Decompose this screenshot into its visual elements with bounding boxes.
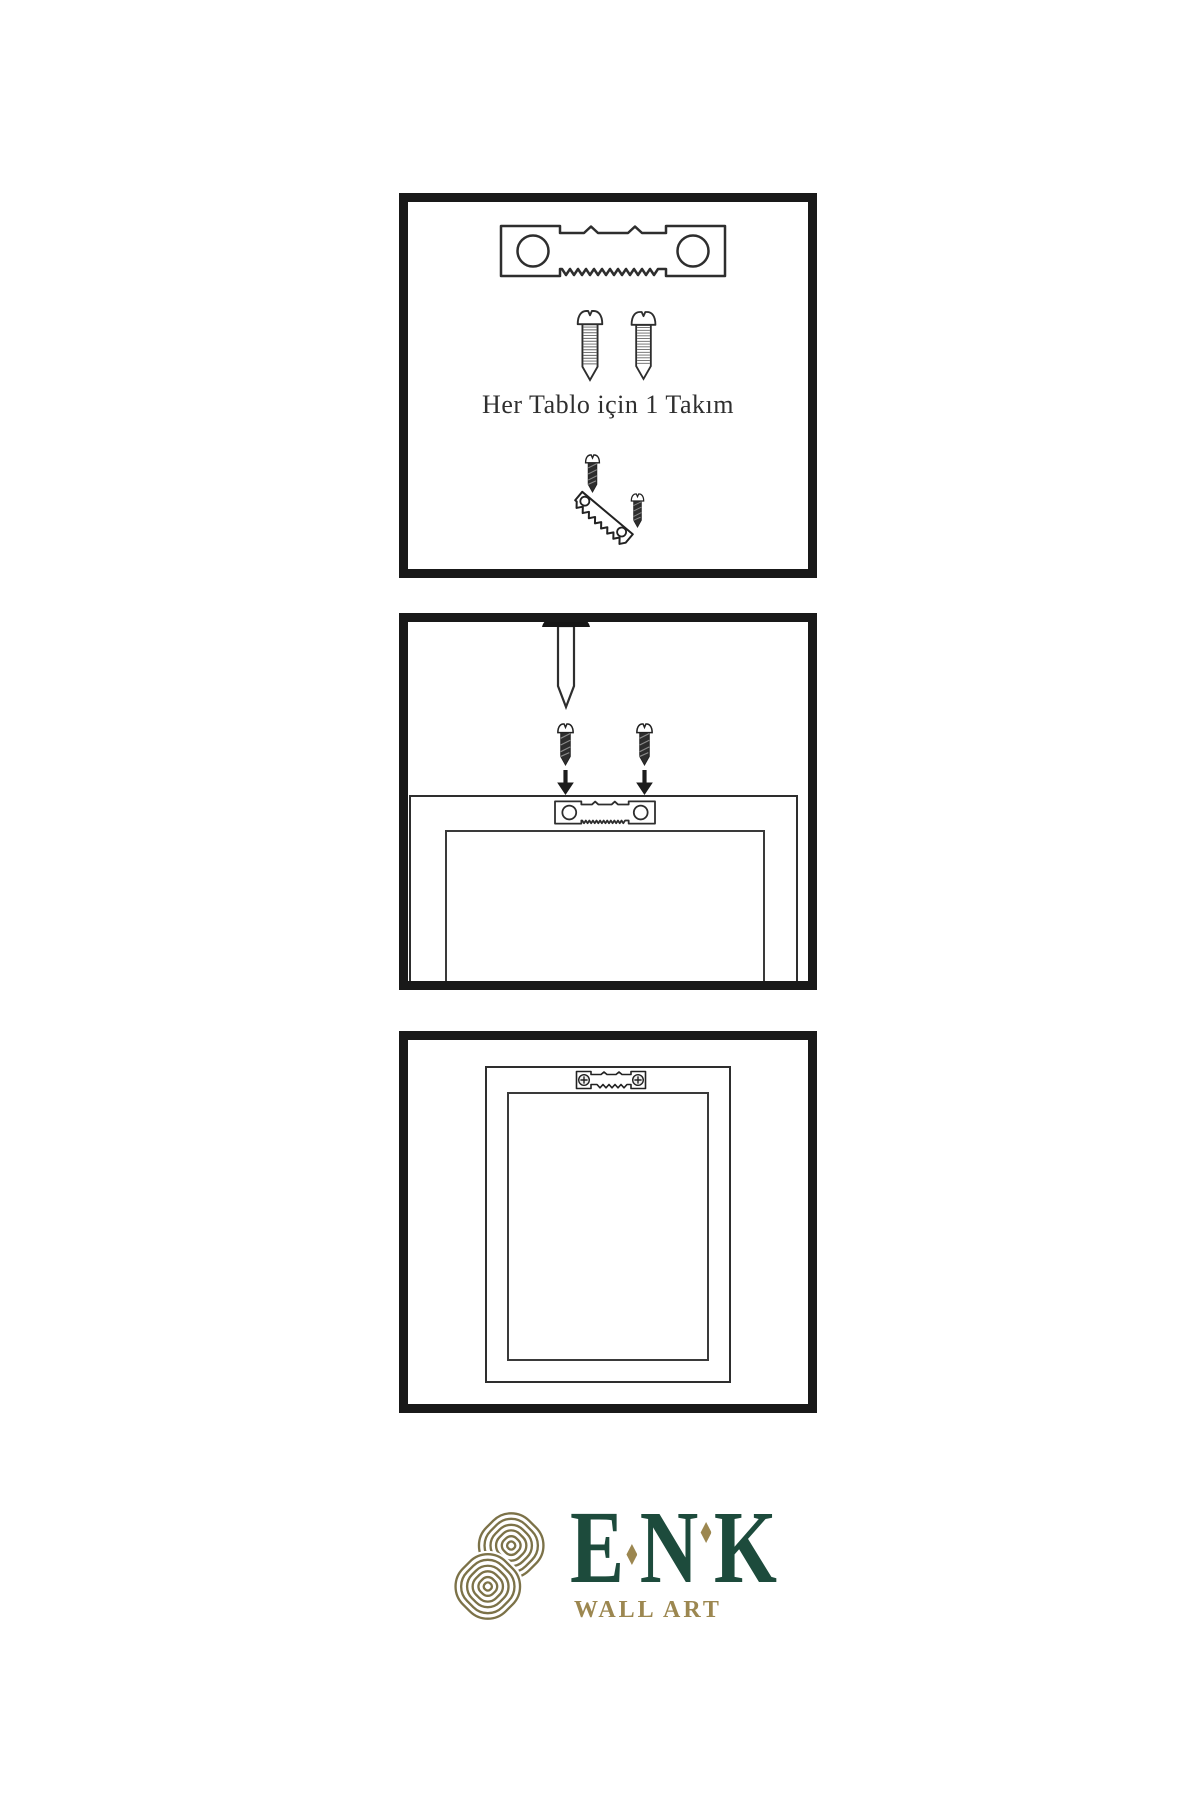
installed-sawtooth-hanger-icon	[575, 1070, 647, 1090]
frame-back-inner-outline	[445, 830, 765, 990]
instruction-sheet: Her Tablo için 1 Takım	[0, 0, 1200, 1800]
screw-icon	[573, 308, 607, 382]
frame-back-inner-outline	[507, 1092, 709, 1361]
sawtooth-hanger-icon	[553, 800, 657, 825]
wall-nail-icon	[541, 614, 591, 710]
brand-wordmark: E N K	[570, 1496, 777, 1600]
small-screw-icon	[634, 723, 655, 767]
diamond-icon	[626, 1544, 637, 1565]
sawtooth-hanger-icon	[498, 223, 728, 279]
small-screw-icon	[629, 493, 646, 529]
brand-subtitle: WALL ART	[574, 1597, 722, 1624]
step-1-panel: Her Tablo için 1 Takım	[399, 193, 817, 578]
screw-icon	[627, 308, 660, 382]
down-arrow-icon	[557, 770, 574, 795]
diamond-icon	[701, 1522, 712, 1543]
down-arrow-icon	[636, 770, 653, 795]
knot-logo-icon	[441, 1503, 558, 1629]
small-screw-icon	[555, 723, 576, 767]
brand-letter: E	[570, 1496, 624, 1600]
small-screw-icon	[583, 454, 602, 494]
step-2-panel	[399, 613, 817, 990]
step-3-panel	[399, 1031, 817, 1413]
tilted-sawtooth-hanger-icon	[569, 489, 635, 549]
brand-letter: K	[714, 1496, 777, 1600]
brand-letter: N	[640, 1496, 699, 1600]
step-1-caption: Her Tablo için 1 Takım	[408, 390, 808, 420]
